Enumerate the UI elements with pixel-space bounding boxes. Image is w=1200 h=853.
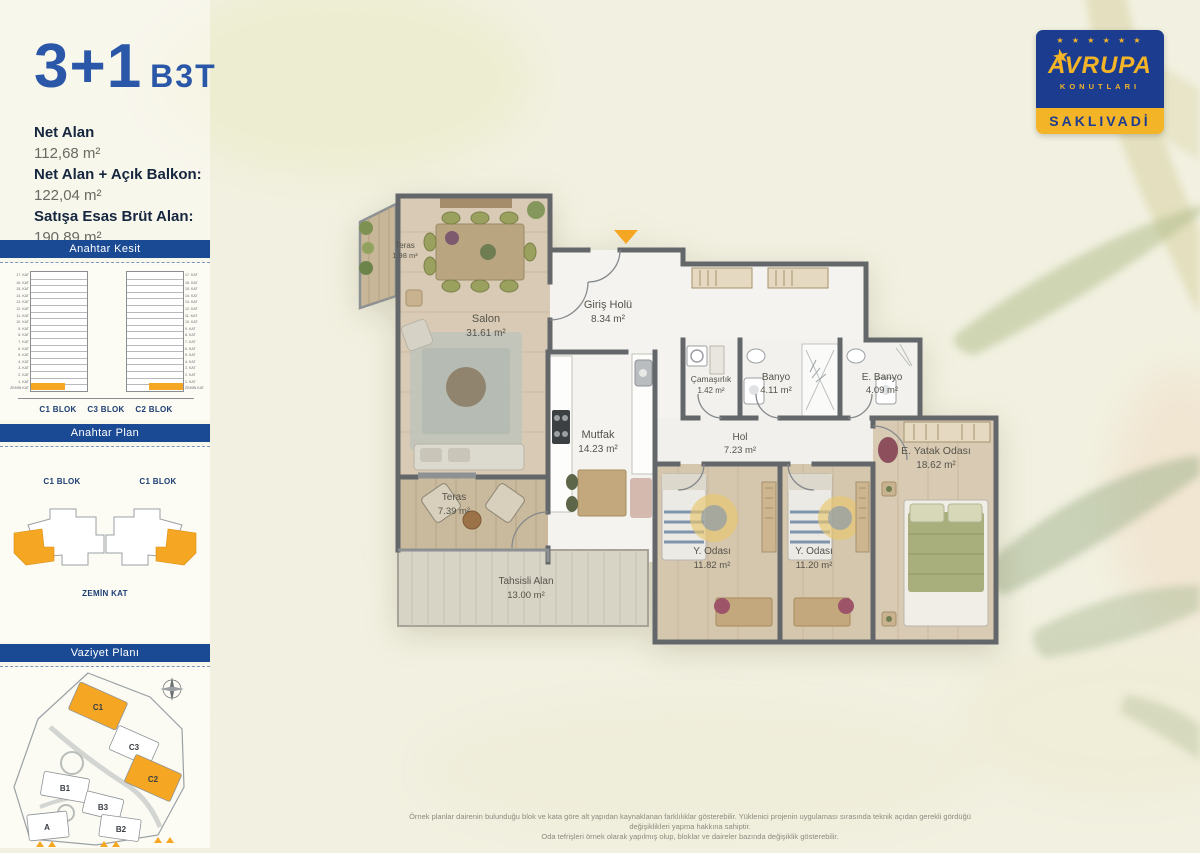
room-label-y-odasi-1: Y. Odası: [693, 546, 731, 557]
room-label-teras-kucuk: Teras: [395, 241, 415, 250]
disclaimer-line-2: Oda tefrişleri örnek olarak yapılmış olu…: [390, 832, 990, 842]
tower-floor-row: 15. KAT: [31, 285, 87, 292]
tower-floor-label: 7. KAT: [18, 339, 31, 346]
tower-floor-row: 11. KAT: [127, 312, 183, 319]
tower-floor-row: 10. KAT: [31, 318, 87, 325]
area-stats: Net Alan 112,68 m² Net Alan + Açık Balko…: [34, 122, 202, 248]
tower-floor-label: 6. KAT: [183, 346, 196, 353]
tower-floor-row: 5. KAT: [127, 351, 183, 358]
disclaimer-line-1: Örnek planlar dairenin bulunduğu blok ve…: [390, 812, 990, 832]
site-label-c3: C3: [129, 743, 140, 752]
logo-brand-text: AVRUPA: [1036, 52, 1164, 80]
room-label-salon: Salon: [472, 313, 500, 325]
room-area-camasirlik: 1.42 m²: [697, 386, 724, 395]
entrance-arrow-icon: [614, 230, 638, 244]
tower-floor-label: 15. KAT: [16, 286, 31, 293]
net-area-value: 112,68 m²: [34, 143, 202, 164]
room-label-e-yatak: E. Yatak Odası: [901, 445, 971, 457]
tower-floor-row: 14. KAT: [31, 292, 87, 299]
floor-caption: ZEMİN KAT: [82, 589, 128, 598]
key-plan-diagrams: [0, 495, 210, 625]
logo-project-name: SAKLIVADİ: [1036, 108, 1164, 134]
room-label-banyo: Banyo: [762, 372, 791, 383]
room-label-giris-holu: Giriş Holü: [584, 299, 632, 311]
tower-floor-row: ZEMİN KAT: [31, 384, 87, 391]
tower-floor-label: 12. KAT: [183, 306, 198, 313]
tower-floor-row: 2. KAT: [31, 371, 87, 378]
room-label-tahsisli: Tahsisli Alan: [498, 576, 553, 587]
tower-floor-row: 3. KAT: [31, 364, 87, 371]
room-area-banyo: 4.11 m²: [760, 385, 792, 396]
tower-floor-row: 8. KAT: [31, 331, 87, 338]
tower-floor-row: 10. KAT: [127, 318, 183, 325]
tower-floor-label: 9. KAT: [18, 326, 31, 333]
tower-section-c2: 17. KAT16. KAT15. KAT14. KAT13. KAT12. K…: [126, 271, 184, 392]
tower-floor-row: 12. KAT: [31, 305, 87, 312]
logo-blue-box: ★ ★ ★ ★ ★ ★ ★ AVRUPA KONUTLARI: [1036, 30, 1164, 108]
tower-floor-label: 4. KAT: [18, 359, 31, 366]
kesit-block-c1: C1 BLOK: [39, 405, 76, 414]
room-area-giris-holu: 8.34 m²: [591, 314, 626, 325]
site-label-c2: C2: [148, 775, 159, 784]
tower-floor-label: 3. KAT: [18, 365, 31, 372]
tower-floor-row: 14. KAT: [127, 292, 183, 299]
tower-floor-label: 2. KAT: [183, 372, 196, 379]
tower-floor-label: 10. KAT: [183, 319, 198, 326]
tower-floor-label: ZEMİN KAT: [183, 385, 204, 392]
room-label-camasirlik: Çamaşırlık: [691, 374, 732, 384]
room-label-e-banyo: E. Banyo: [862, 372, 903, 383]
tower-floor-label: ZEMİN KAT: [10, 385, 31, 392]
tower-floor-row: ZEMİN KAT: [127, 384, 183, 391]
tower-floor-row: 3. KAT: [127, 364, 183, 371]
tower-floor-label: 12. KAT: [16, 306, 31, 313]
tower-floor-label: 6. KAT: [18, 346, 31, 353]
tower-floor-row: 4. KAT: [31, 358, 87, 365]
logo-stars-icon: ★ ★ ★ ★ ★ ★: [1036, 36, 1164, 45]
room-label-mutfak: Mutfak: [581, 429, 615, 441]
tower-floor-row: 13. KAT: [127, 298, 183, 305]
balcony-area-value: 122,04 m²: [34, 185, 202, 206]
tower-floor-row: 13. KAT: [31, 298, 87, 305]
kesit-block-c2: C2 BLOK: [135, 405, 172, 414]
anahtar-plan-panel: C1 BLOK C1 BLOK ZEMİN KAT: [0, 447, 210, 642]
room-area-salon: 31.61 m²: [466, 328, 506, 339]
room-area-teras-kucuk: 1.98 m²: [392, 251, 418, 260]
tower-floor-label: 14. KAT: [16, 293, 31, 300]
tower-floor-label: 14. KAT: [183, 293, 198, 300]
logo-sub-text: KONUTLARI: [1036, 82, 1164, 91]
tower-floor-label: 8. KAT: [18, 332, 31, 339]
tower-floor-label: 2. KAT: [18, 372, 31, 379]
balcony-area-label: Net Alan + Açık Balkon:: [34, 164, 202, 185]
tower-floor-row: 16. KAT: [127, 279, 183, 286]
tower-floor-row: 2. KAT: [127, 371, 183, 378]
page-title: 3+1B3T: [34, 36, 217, 98]
tower-floor-row: 9. KAT: [127, 325, 183, 332]
gross-area-label: Satışa Esas Brüt Alan:: [34, 206, 202, 227]
plan-block-left-label: C1 BLOK: [43, 477, 80, 486]
site-label-b1: B1: [60, 784, 71, 793]
tower-floor-row: 8. KAT: [127, 331, 183, 338]
tower-floor-label: 8. KAT: [183, 332, 196, 339]
anahtar-kesit-panel: 17. KAT16. KAT15. KAT14. KAT13. KAT12. K…: [0, 263, 210, 420]
room-area-y-odasi-2: 11.20 m²: [796, 560, 833, 571]
room-area-tahsisli: 13.00 m²: [507, 590, 545, 601]
tower-floor-row: 6. KAT: [127, 345, 183, 352]
tower-floor-label: 17. KAT: [16, 272, 31, 279]
room-area-y-odasi-1: 11.82 m²: [694, 560, 731, 571]
brand-logo: ★ ★ ★ ★ ★ ★ ★ AVRUPA KONUTLARI SAKLIVADİ: [1036, 30, 1164, 134]
site-label-c1: C1: [93, 703, 104, 712]
room-label-teras-buyuk: Teras: [442, 492, 466, 503]
tower-floor-row: 15. KAT: [127, 285, 183, 292]
site-plan: C1 C3 C2 B1 B3 B2 A: [0, 667, 210, 848]
tower-floor-label: 10. KAT: [16, 319, 31, 326]
tower-floor-label: 5. KAT: [18, 352, 31, 359]
title-plan-code: B3T: [150, 58, 216, 94]
tower-floor-label: 1. KAT: [183, 379, 196, 386]
tower-floor-row: 16. KAT: [31, 279, 87, 286]
ground-line: [18, 398, 194, 399]
tower-floor-row: 12. KAT: [127, 305, 183, 312]
net-area-label: Net Alan: [34, 122, 202, 143]
room-label-y-odasi-2: Y. Odası: [795, 546, 833, 557]
room-area-e-yatak: 18.62 m²: [916, 460, 956, 471]
tower-floor-row: 11. KAT: [31, 312, 87, 319]
section-header-vaziyet-plani: Vaziyet Planı: [0, 644, 210, 662]
room-area-mutfak: 14.23 m²: [578, 444, 618, 455]
tower-floor-row: 4. KAT: [127, 358, 183, 365]
tower-floor-row: 17. KAT: [31, 272, 87, 279]
tower-floor-label: 7. KAT: [183, 339, 196, 346]
tower-floor-label: 16. KAT: [183, 280, 198, 287]
tower-floor-label: 11. KAT: [183, 313, 197, 320]
tower-floor-label: 4. KAT: [183, 359, 196, 366]
tower-floor-row: 6. KAT: [31, 345, 87, 352]
tower-floor-label: 13. KAT: [183, 299, 198, 306]
room-area-teras-buyuk: 7.39 m²: [438, 506, 470, 517]
tower-floor-row: 9. KAT: [31, 325, 87, 332]
sidebar: 3+1B3T Net Alan 112,68 m² Net Alan + Açı…: [0, 0, 210, 848]
tower-floor-row: 17. KAT: [127, 272, 183, 279]
tower-floor-label: 9. KAT: [183, 326, 196, 333]
plan-block-right-label: C1 BLOK: [139, 477, 176, 486]
section-header-anahtar-plan: Anahtar Plan: [0, 424, 210, 442]
floor-plan: Teras 1.98 m² Salon 31.61 m² Giriş Holü …: [348, 182, 1010, 654]
room-area-hol: 7.23 m²: [724, 445, 756, 456]
tower-floor-label: 15. KAT: [183, 286, 198, 293]
tower-floor-label: 1. KAT: [18, 379, 31, 386]
tower-floor-label: 11. KAT: [17, 313, 31, 320]
room-area-e-banyo: 4.09 m²: [866, 385, 898, 396]
highlighted-floor: [31, 383, 65, 390]
tower-floor-row: 5. KAT: [31, 351, 87, 358]
tower-floor-label: 16. KAT: [16, 280, 31, 287]
site-label-b2: B2: [116, 825, 127, 834]
tower-floor-label: 17. KAT: [183, 272, 198, 279]
site-label-b3: B3: [98, 803, 109, 812]
tower-floor-label: 3. KAT: [183, 365, 196, 372]
disclaimer: Örnek planlar dairenin bulunduğu blok ve…: [390, 812, 990, 842]
tower-section-c1: 17. KAT16. KAT15. KAT14. KAT13. KAT12. K…: [30, 271, 88, 392]
tower-floor-row: 7. KAT: [127, 338, 183, 345]
tower-floor-row: 7. KAT: [31, 338, 87, 345]
highlighted-floor: [149, 383, 183, 390]
kesit-block-c3: C3 BLOK: [87, 405, 124, 414]
tower-floor-label: 5. KAT: [183, 352, 196, 359]
tower-floor-label: 13. KAT: [16, 299, 31, 306]
vaziyet-panel: C1 C3 C2 B1 B3 B2 A: [0, 667, 210, 848]
compass-icon: [160, 677, 184, 701]
section-header-anahtar-kesit: Anahtar Kesit: [0, 240, 210, 258]
room-label-hol: Hol: [732, 432, 747, 443]
site-label-a: A: [44, 823, 50, 832]
title-room-count: 3+1: [34, 32, 142, 101]
